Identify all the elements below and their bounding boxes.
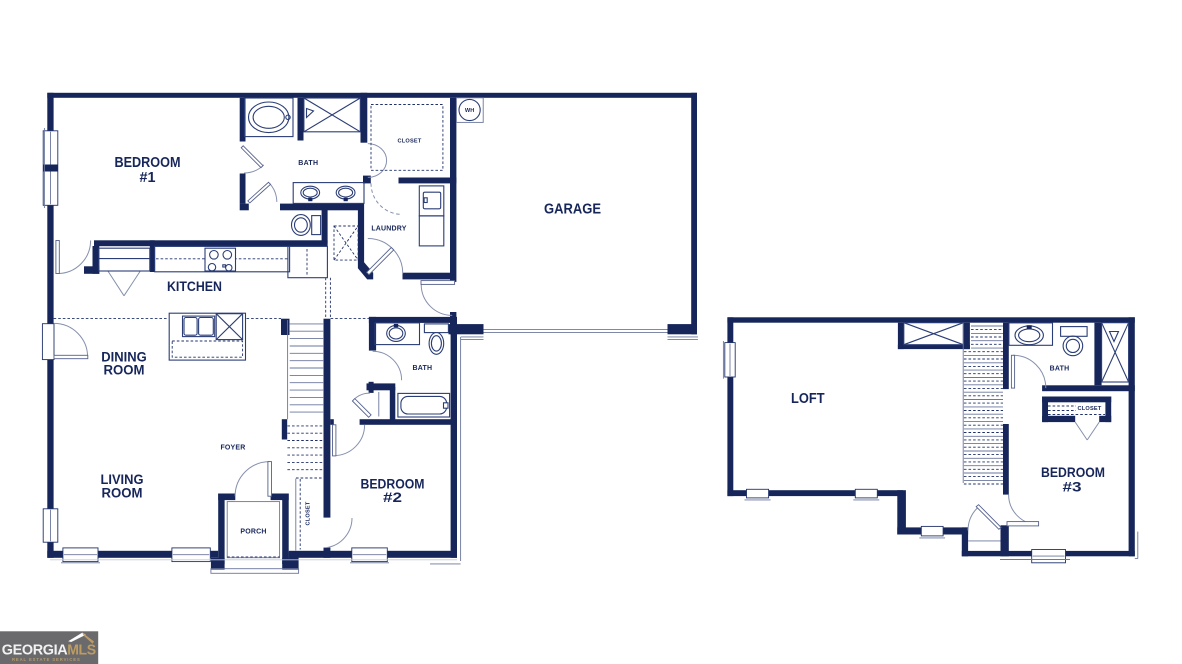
svg-text:BEDROOM: BEDROOM: [115, 155, 181, 171]
svg-text:MLS: MLS: [67, 642, 96, 659]
svg-text:BATH: BATH: [413, 365, 433, 372]
svg-text:CLOSET: CLOSET: [398, 138, 422, 144]
svg-text:GEORGIA: GEORGIA: [2, 642, 68, 659]
svg-text:ROOM: ROOM: [104, 363, 145, 378]
svg-text:LOFT: LOFT: [791, 391, 825, 407]
svg-text:PORCH: PORCH: [240, 529, 266, 536]
svg-text:FOYER: FOYER: [220, 444, 245, 451]
svg-text:LAUNDRY: LAUNDRY: [371, 225, 406, 232]
svg-text:WH: WH: [465, 108, 474, 114]
svg-text:BATH: BATH: [298, 160, 318, 167]
svg-text:REAL ESTATE SERVICES: REAL ESTATE SERVICES: [12, 657, 81, 662]
svg-text:GARAGE: GARAGE: [544, 201, 601, 217]
svg-text:CLOSET: CLOSET: [306, 501, 312, 525]
svg-text:BATH: BATH: [1050, 366, 1070, 373]
svg-text:#2: #2: [383, 490, 402, 505]
svg-text:#3: #3: [1063, 479, 1082, 495]
svg-text:ROOM: ROOM: [102, 486, 143, 501]
svg-text:#1: #1: [140, 170, 156, 186]
svg-text:CLOSET: CLOSET: [1078, 406, 1102, 412]
svg-text:KITCHEN: KITCHEN: [167, 279, 222, 294]
